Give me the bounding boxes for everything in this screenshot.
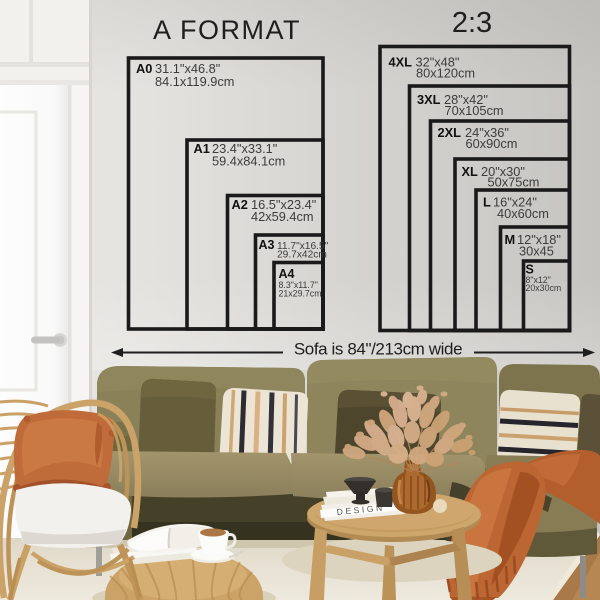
svg-text:84.1x119.9cm: 84.1x119.9cm	[155, 74, 234, 89]
svg-text:60x90cm: 60x90cm	[466, 136, 518, 151]
svg-text:A2: A2	[232, 197, 248, 212]
svg-text:29.7x42cm: 29.7x42cm	[277, 250, 327, 261]
svg-text:2XL: 2XL	[438, 125, 462, 140]
svg-text:2:3: 2:3	[452, 7, 492, 39]
svg-text:59.4x84.1cm: 59.4x84.1cm	[212, 154, 285, 169]
svg-text:M: M	[505, 232, 516, 247]
svg-text:42x59.4cm: 42x59.4cm	[251, 209, 314, 224]
svg-text:A3: A3	[259, 238, 275, 252]
svg-text:A4: A4	[279, 267, 295, 281]
svg-text:21x29.7cm: 21x29.7cm	[279, 289, 322, 299]
svg-text:A1: A1	[194, 141, 210, 156]
svg-text:A0: A0	[136, 61, 152, 76]
svg-text:4XL: 4XL	[389, 55, 413, 70]
svg-text:50x75cm: 50x75cm	[488, 175, 540, 190]
svg-text:A FORMAT: A FORMAT	[153, 15, 301, 45]
svg-text:30x45: 30x45	[519, 244, 554, 259]
svg-text:40x60cm: 40x60cm	[497, 206, 549, 221]
svg-text:20x30cm: 20x30cm	[526, 283, 562, 293]
svg-text:L: L	[483, 195, 491, 210]
svg-text:XL: XL	[462, 164, 479, 179]
svg-text:80x120cm: 80x120cm	[416, 66, 475, 81]
svg-text:Sofa is 84"/213cm wide: Sofa is 84"/213cm wide	[294, 340, 462, 359]
svg-text:70x105cm: 70x105cm	[445, 103, 504, 118]
svg-text:3XL: 3XL	[417, 92, 441, 107]
